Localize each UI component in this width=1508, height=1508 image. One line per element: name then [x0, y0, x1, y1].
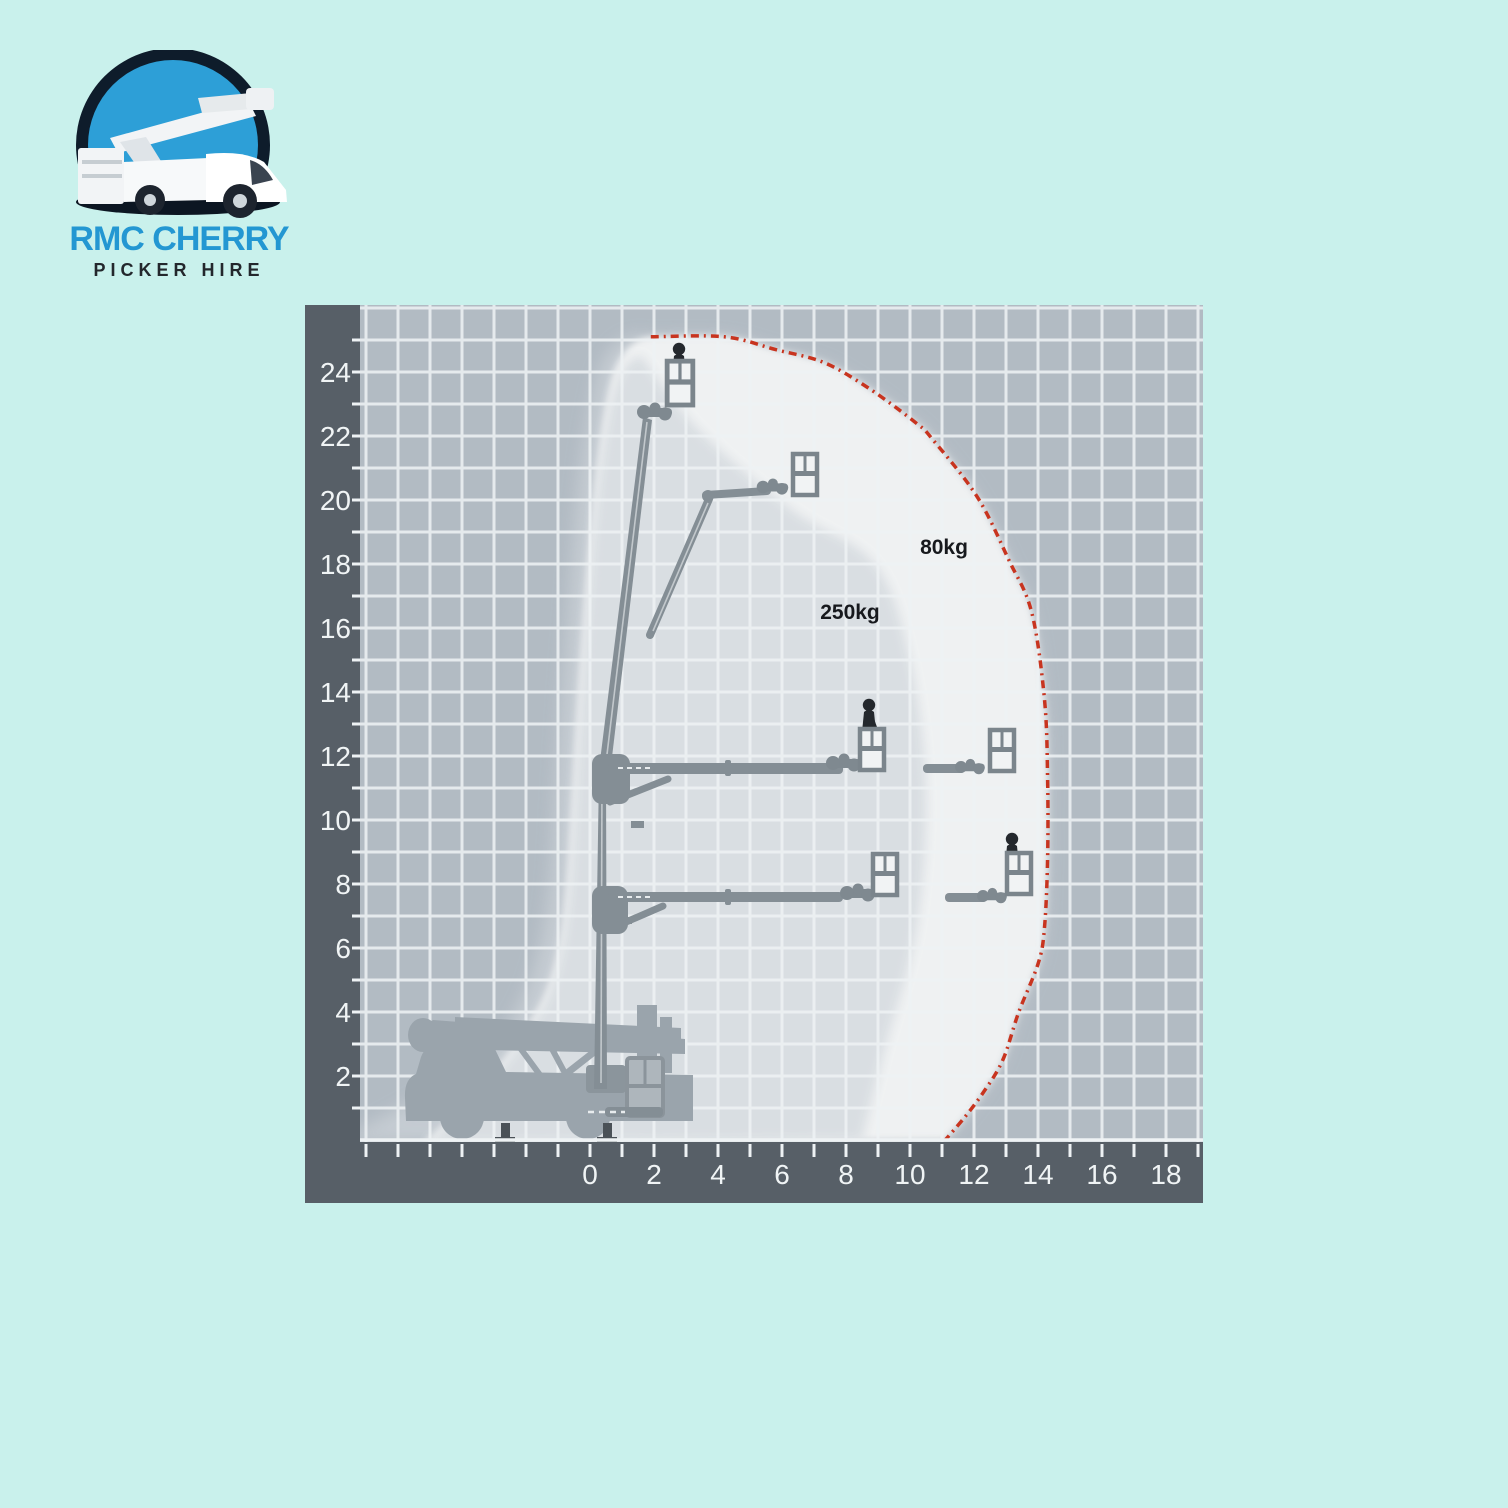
axis-tick-label: 14 [1022, 1159, 1053, 1190]
logo-title: RMC CHERRY [58, 222, 300, 256]
logo-graphic [58, 50, 300, 220]
basket-top [666, 361, 694, 405]
axis-tick-label: 12 [320, 741, 351, 772]
axis-tick-label: 24 [320, 357, 351, 388]
axis-tick-label: 18 [320, 549, 351, 580]
axis-tick-label: 4 [710, 1159, 726, 1190]
axis-tick-label: 6 [774, 1159, 790, 1190]
basket-7m-outer [1006, 853, 1032, 894]
axis-tick-label: 6 [335, 933, 351, 964]
grid-lines [360, 305, 1203, 1143]
axis-tick-label: 20 [320, 485, 351, 516]
axis-tick-label: 8 [838, 1159, 854, 1190]
load-label-250kg: 250kg [820, 601, 880, 624]
axis-tick-label: 16 [1086, 1159, 1117, 1190]
axis-tick-label: 0 [582, 1159, 598, 1190]
page-canvas: RMC CHERRY PICKER HIRE [0, 0, 1508, 1508]
axis-tick-label: 12 [958, 1159, 989, 1190]
axis-tick-label: 22 [320, 421, 351, 452]
axis-tick-label: 10 [894, 1159, 925, 1190]
basket-11m-inner [859, 729, 885, 770]
axis-tick-label: 16 [320, 613, 351, 644]
axis-tick-label: 8 [335, 869, 351, 900]
x-axis-band [305, 1142, 1203, 1203]
basket-21m [792, 454, 818, 495]
basket-11m-outer [989, 730, 1015, 771]
axis-tick-label: 2 [646, 1159, 662, 1190]
logo: RMC CHERRY PICKER HIRE [58, 50, 300, 281]
axis-tick-label: 18 [1150, 1159, 1181, 1190]
logo-subtitle: PICKER HIRE [58, 260, 300, 281]
axis-tick-label: 14 [320, 677, 351, 708]
basket-7m-inner [872, 854, 898, 895]
axis-tick-label: 10 [320, 805, 351, 836]
axis-tick-label: 2 [335, 1061, 351, 1092]
axis-tick-label: 4 [335, 997, 351, 1028]
load-label-80kg: 80kg [920, 536, 968, 559]
reach-diagram: 80kg 250kg 24681012141618202224 02468101… [305, 305, 1203, 1203]
